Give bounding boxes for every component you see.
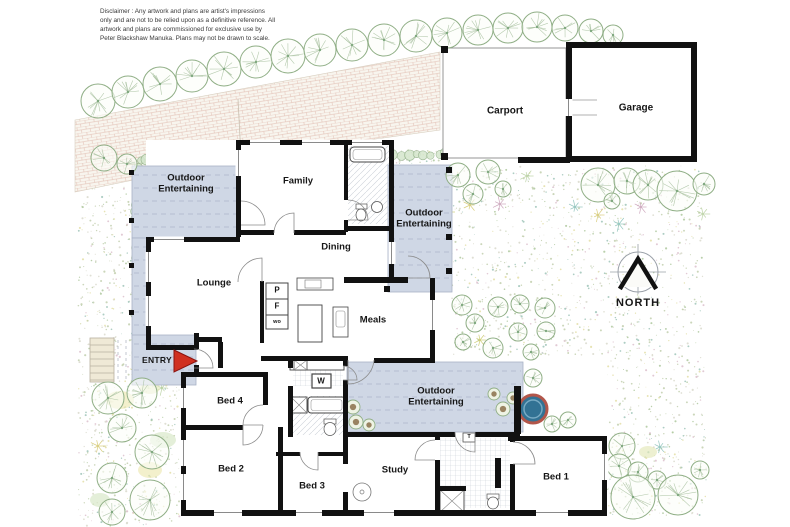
wall-oven-marker: wo <box>273 319 281 325</box>
north-arrow-icon <box>621 259 655 287</box>
t-marker: T <box>467 434 470 440</box>
disclaimer-line: only and are not to be relied upon as a … <box>100 17 275 26</box>
outdoor-entertaining-label-rear: Outdoor Entertaining <box>394 386 478 407</box>
disclaimer-text: Disclaimer : Any artwork and plans are a… <box>100 8 275 44</box>
fridge-marker: F <box>275 303 280 312</box>
floor-plan: Disclaimer : Any artwork and plans are a… <box>0 0 790 527</box>
room-label-family: Family <box>283 177 313 188</box>
site-plan-graphics <box>0 0 790 527</box>
room-label-meals: Meals <box>360 316 386 327</box>
disclaimer-line: Disclaimer : Any artwork and plans are a… <box>100 8 275 17</box>
room-label-garage: Garage <box>619 102 653 113</box>
disclaimer-line: Peter Blackshaw Manuka. Plans may not be… <box>100 35 275 44</box>
room-label-bed2: Bed 2 <box>218 465 244 476</box>
pantry-marker: P <box>274 287 279 296</box>
room-label-carport: Carport <box>487 105 523 116</box>
outdoor-entertaining-label-top-left: Outdoor Entertaining <box>151 173 221 194</box>
room-label-bed4: Bed 4 <box>217 397 243 408</box>
entry-label: ENTRY <box>142 356 172 366</box>
outdoor-entertaining-label-side: Outdoor Entertaining <box>389 208 459 229</box>
washer-marker: W <box>317 378 325 387</box>
room-label-study: Study <box>382 466 408 477</box>
room-label-dining: Dining <box>321 243 351 254</box>
room-label-bed1: Bed 1 <box>543 473 569 484</box>
spa <box>519 395 547 423</box>
room-label-bed3: Bed 3 <box>299 482 325 493</box>
room-label-lounge: Lounge <box>197 279 231 290</box>
north-label: NORTH <box>616 297 660 309</box>
disclaimer-line: artwork and plans are commissioned for e… <box>100 26 275 35</box>
